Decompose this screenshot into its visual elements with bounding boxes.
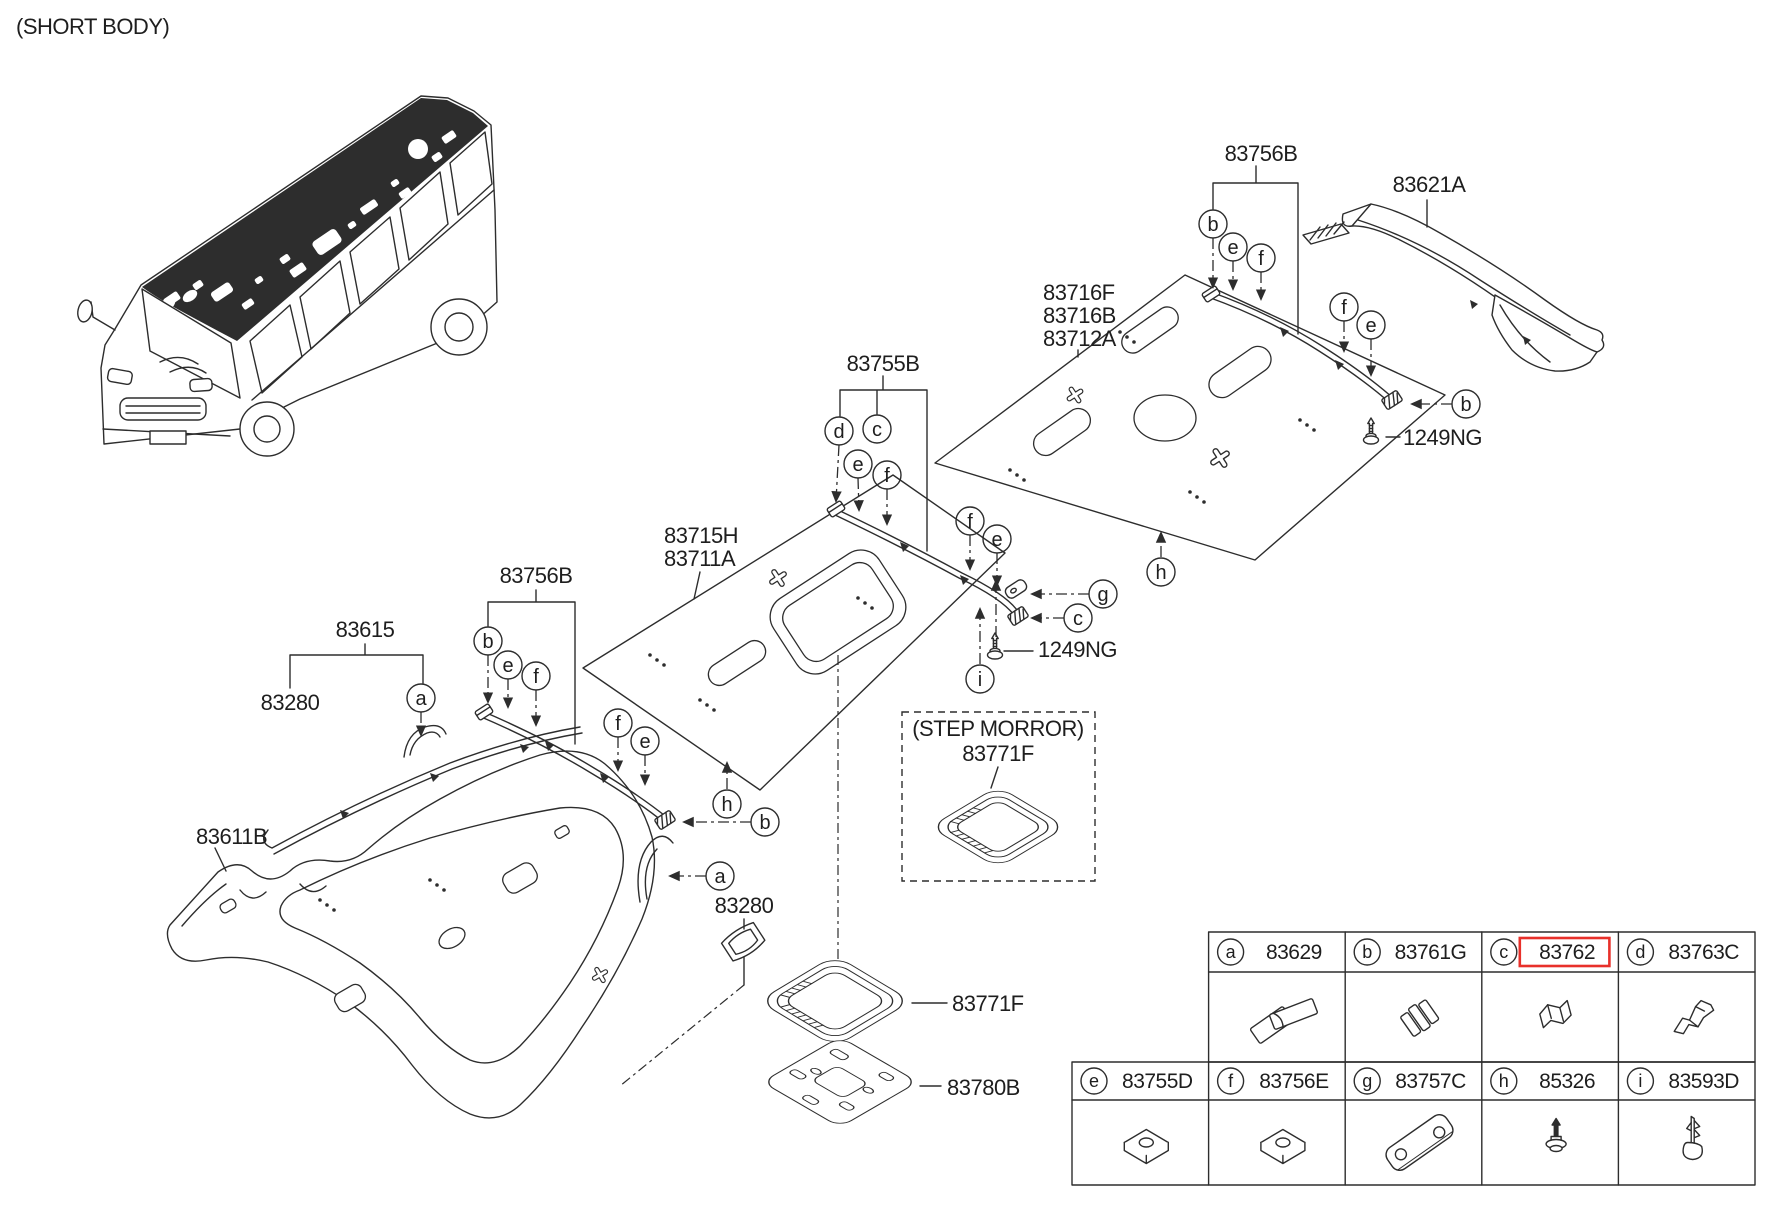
svg-text:f: f (1258, 248, 1264, 270)
svg-text:b: b (1362, 942, 1372, 962)
part-number-83763C[interactable]: 83763C (1668, 941, 1739, 964)
lbl-83715h: 83715H (664, 523, 738, 548)
lbl-83716b: 83716B (1043, 303, 1116, 328)
lbl-83280-a: 83280 (261, 690, 320, 715)
svg-text:f: f (884, 465, 890, 487)
lbl-83756b-rear: 83756B (1225, 141, 1298, 166)
lbl-83280-b: 83280 (715, 893, 774, 918)
lbl-83621a: 83621A (1393, 172, 1467, 197)
svg-text:f: f (1341, 297, 1347, 319)
lbl-83712a: 83712A (1043, 326, 1117, 351)
svg-text:e: e (639, 731, 650, 753)
svg-text:c: c (1073, 608, 1083, 630)
lbl-83755b: 83755B (847, 351, 920, 376)
part-number-83593D[interactable]: 83593D (1668, 1070, 1739, 1093)
lbl-83711a: 83711A (664, 546, 736, 571)
lbl-83756b-front: 83756B (500, 563, 573, 588)
lbl-83780b: 83780B (947, 1075, 1020, 1100)
svg-text:e: e (502, 655, 513, 677)
lbl-83611b: 83611B (196, 824, 267, 849)
svg-text:h: h (721, 794, 732, 816)
svg-text:b: b (482, 631, 493, 653)
svg-text:b: b (1460, 394, 1471, 416)
svg-text:c: c (1499, 942, 1508, 962)
svg-text:e: e (1227, 237, 1238, 259)
svg-text:e: e (1365, 315, 1376, 337)
lbl-1249ng-rear: 1249NG (1403, 425, 1482, 450)
lbl-83615: 83615 (336, 617, 395, 642)
svg-text:i: i (978, 669, 982, 691)
svg-text:d: d (1635, 942, 1645, 962)
short-body-note: (SHORT BODY) (16, 14, 169, 39)
svg-text:g: g (1097, 584, 1108, 606)
svg-text:d: d (833, 421, 844, 443)
part-number-83761G[interactable]: 83761G (1395, 941, 1467, 964)
svg-text:i: i (1638, 1071, 1642, 1091)
svg-text:b: b (759, 812, 770, 834)
svg-text:a: a (1226, 942, 1237, 962)
svg-text:h: h (1155, 562, 1166, 584)
svg-text:c: c (872, 419, 882, 441)
lbl-1249ng-mid: 1249NG (1038, 637, 1117, 662)
parts-diagram-canvas: 83756B83621A1249NG83716F83716B83712A8375… (0, 0, 1772, 1211)
part-number-83756E[interactable]: 83756E (1259, 1070, 1329, 1093)
svg-text:f: f (967, 511, 973, 533)
lbl-83716f: 83716F (1043, 280, 1115, 305)
svg-text:e: e (991, 529, 1002, 551)
lbl-83771f: 83771F (952, 991, 1024, 1016)
part-number-83762[interactable]: 83762 (1539, 941, 1595, 964)
svg-text:f: f (533, 666, 539, 688)
lbl-step-morror: (STEP MORROR) (912, 716, 1084, 741)
svg-text:a: a (714, 866, 726, 888)
svg-text:a: a (415, 688, 427, 710)
svg-text:g: g (1362, 1071, 1372, 1091)
svg-text:e: e (852, 454, 863, 476)
lbl-83771f-step: 83771F (962, 741, 1034, 766)
svg-text:b: b (1207, 214, 1218, 236)
part-number-83629[interactable]: 83629 (1266, 941, 1322, 964)
part-number-83757C[interactable]: 83757C (1395, 1070, 1466, 1093)
part-number-83755D[interactable]: 83755D (1122, 1070, 1193, 1093)
svg-text:f: f (615, 713, 621, 735)
part-number-85326[interactable]: 85326 (1539, 1070, 1595, 1093)
svg-text:e: e (1089, 1071, 1099, 1091)
svg-text:h: h (1499, 1071, 1509, 1091)
